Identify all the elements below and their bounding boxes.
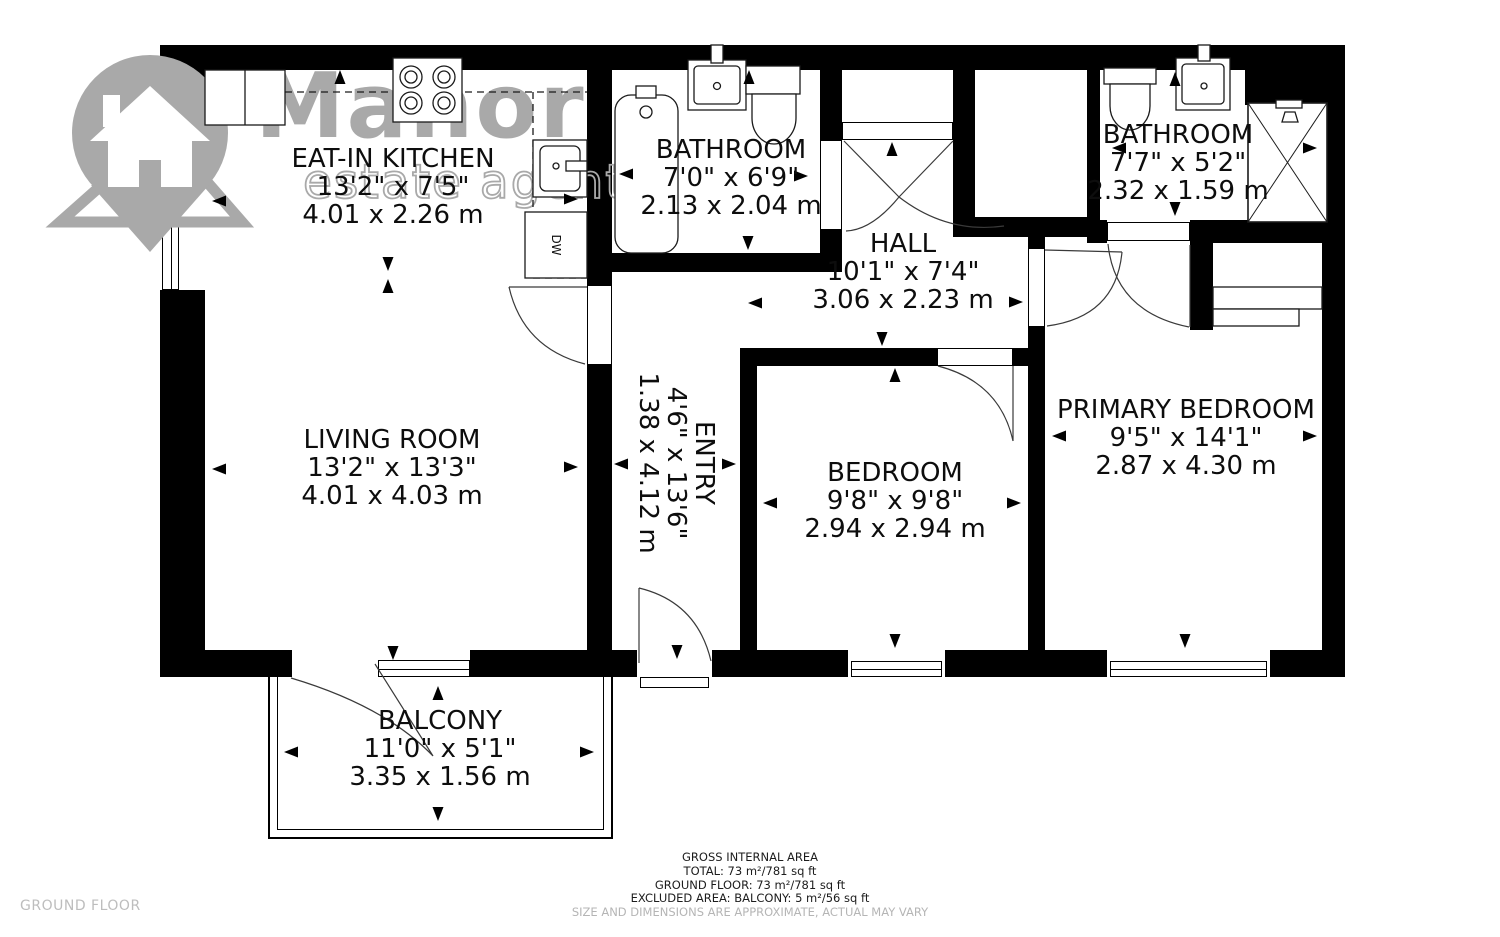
room-name: BATHROOM [640,136,821,164]
room-dims-imperial: 13'2" x 13'3" [301,454,482,482]
room-dims-metric: 2.32 x 1.59 m [1087,177,1268,205]
dimension-arrow [212,196,226,207]
dimension-arrow [388,646,399,660]
room-dims-metric: 1.38 x 4.12 m [634,372,662,553]
room-dims-metric: 2.13 x 2.04 m [640,192,821,220]
dimension-arrow [580,747,594,758]
room-dims-metric: 3.06 x 2.23 m [812,286,993,314]
room-label-living: LIVING ROOM 13'2" x 13'3" 4.01 x 4.03 m [301,426,482,510]
room-dims-imperial: 4'6" x 13'6" [662,372,690,553]
dimension-arrow [433,807,444,821]
room-name: ENTRY [690,372,718,553]
room-name: HALL [812,230,993,258]
room-dims-imperial: 7'0" x 6'9" [640,164,821,192]
room-name: BATHROOM [1087,121,1268,149]
dimension-arrow [722,459,736,470]
room-name: BEDROOM [804,459,985,487]
dimension-arrow [614,459,628,470]
room-label-kitchen: EAT-IN KITCHEN 13'2" x 7'5" 4.01 x 2.26 … [291,145,494,229]
room-label-hall: HALL 10'1" x 7'4" 3.06 x 2.23 m [812,230,993,314]
room-dims-metric: 3.35 x 1.56 m [349,763,530,791]
gross-internal-area-title: GROSS INTERNAL AREA [572,851,928,865]
dimension-arrow [284,747,298,758]
room-dims-imperial: 9'8" x 9'8" [804,487,985,515]
room-dims-metric: 4.01 x 2.26 m [291,201,494,229]
room-dims-imperial: 7'7" x 5'2" [1087,149,1268,177]
sliding-wardrobe-icon [1213,287,1322,326]
bathroom1-sink-icon [688,45,746,110]
room-dims-metric: 2.87 x 4.30 m [1057,452,1315,480]
room-name: PRIMARY BEDROOM [1057,396,1315,424]
dimension-arrow [890,634,901,648]
ground-floor-area: GROUND FLOOR: 73 m²/781 sq ft [572,879,928,893]
kitchen-sink-icon [533,140,587,197]
disclaimer: SIZE AND DIMENSIONS ARE APPROXIMATE, ACT… [572,906,928,920]
dimension-arrow [383,257,394,271]
dimension-arrow [743,236,754,250]
dimension-arrow [1009,297,1023,308]
room-label-bathroom2: BATHROOM 7'7" x 5'2" 2.32 x 1.59 m [1087,121,1268,205]
dimension-arrow [433,686,444,700]
dimension-arrow [1007,498,1021,509]
room-dims-imperial: 13'2" x 7'5" [291,173,494,201]
room-dims-metric: 2.94 x 2.94 m [804,515,985,543]
dimension-arrow [748,298,762,309]
dimension-arrow [564,462,578,473]
room-label-bedroom: BEDROOM 9'8" x 9'8" 2.94 x 2.94 m [804,459,985,543]
room-dims-imperial: 9'5" x 14'1" [1057,424,1315,452]
stove-icon [393,58,462,122]
room-label-entry: ENTRY 4'6" x 13'6" 1.38 x 4.12 m [634,372,718,553]
dimension-arrow [890,368,901,382]
room-name: LIVING ROOM [301,426,482,454]
room-label-primary: PRIMARY BEDROOM 9'5" x 14'1" 2.87 x 4.30… [1057,396,1315,480]
dimension-arrow [877,332,888,346]
room-label-bathroom1: BATHROOM 7'0" x 6'9" 2.13 x 2.04 m [640,136,821,220]
area-summary: GROSS INTERNAL AREA TOTAL: 73 m²/781 sq … [572,851,928,920]
room-dims-metric: 4.01 x 4.03 m [301,482,482,510]
dimension-arrow [887,142,898,156]
excluded-area: EXCLUDED AREA: BALCONY: 5 m²/56 sq ft [572,892,928,906]
dimension-arrow [212,464,226,475]
room-label-balcony: BALCONY 11'0" x 5'1" 3.35 x 1.56 m [349,707,530,791]
dimension-arrow [383,279,394,293]
room-name: BALCONY [349,707,530,735]
room-dims-imperial: 11'0" x 5'1" [349,735,530,763]
floorplan: Manor estate agent [0,0,1500,937]
bathroom2-sink-icon [1176,45,1230,110]
dimension-arrow [1180,634,1191,648]
dishwasher-label: DW [549,234,563,255]
bathroom1-toilet-icon [746,66,800,144]
dimension-arrow [335,70,346,84]
room-name: EAT-IN KITCHEN [291,145,494,173]
dimension-arrow [672,645,683,659]
dimension-arrow [763,498,777,509]
floor-name: GROUND FLOOR [20,898,141,914]
total-area: TOTAL: 73 m²/781 sq ft [572,865,928,879]
room-dims-imperial: 10'1" x 7'4" [812,258,993,286]
